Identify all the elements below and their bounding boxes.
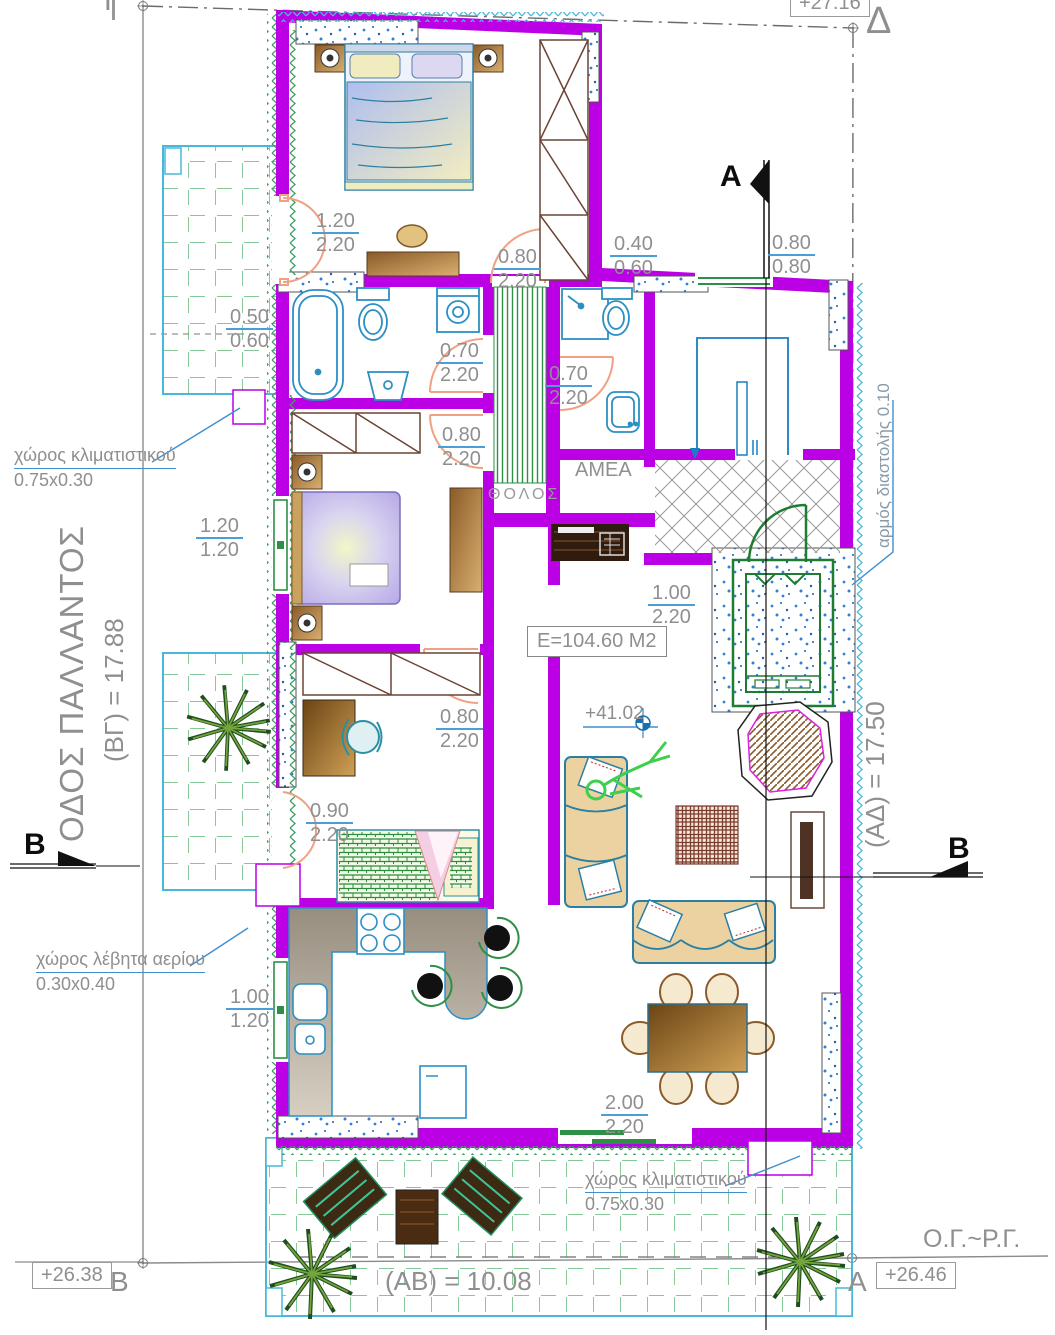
boiler-note: χώρος λέβητα αερίου 0.30x0.40 xyxy=(36,948,205,997)
terrace-table xyxy=(396,1190,438,1244)
rug xyxy=(676,806,738,864)
toilet xyxy=(357,288,389,340)
armchair xyxy=(738,702,832,800)
shower xyxy=(562,289,608,339)
dimension-label: 2.002.20 xyxy=(601,1092,648,1138)
level-box-b: +26.38 xyxy=(32,1262,112,1289)
dimension-label: 1.201.20 xyxy=(196,515,243,561)
side-ad-label: (ΑΔ) = 17.50 xyxy=(860,701,891,848)
corner-letter-b: B xyxy=(110,1266,129,1298)
corner-letter-gamma: Γ xyxy=(104,0,121,18)
dimension-label: 1.001.20 xyxy=(226,986,273,1032)
dimension-label: 0.800.80 xyxy=(768,232,815,278)
bed xyxy=(292,492,400,604)
window-1-20 xyxy=(272,496,289,594)
dimension-label: 1.002.20 xyxy=(648,582,695,628)
wardrobe xyxy=(540,40,588,280)
dining-set xyxy=(622,974,774,1104)
tholos-label: ΘΟΛΟΣ xyxy=(488,486,560,504)
ac-niche-bottom xyxy=(748,1141,812,1175)
corner-letter-a: A xyxy=(848,1266,867,1298)
level-box-a: +26.46 xyxy=(876,1262,956,1289)
dimension-label: 0.802.20 xyxy=(438,424,485,470)
ac-niche-left xyxy=(233,390,265,424)
section-letter-a-top: A xyxy=(720,160,742,194)
living-room xyxy=(565,702,832,1104)
sink xyxy=(607,392,639,432)
entry-doormat xyxy=(551,524,629,561)
kitchen xyxy=(289,908,522,1118)
tall-cabinet xyxy=(450,488,482,592)
dimension-label: 0.902.20 xyxy=(306,800,353,846)
washing-machine xyxy=(437,288,479,332)
dimension-label: 0.802.20 xyxy=(494,246,541,292)
furniture-office xyxy=(303,653,480,902)
floor-plan-drawing xyxy=(0,0,1055,1335)
street-name-label: ΟΔΟΣ ΠΑΛΛΑΝΤΟΣ xyxy=(53,525,91,842)
side-ab-label: (ΑΒ) = 10.08 xyxy=(385,1266,532,1297)
toilet xyxy=(602,288,632,335)
window-1-00 xyxy=(272,958,289,1062)
side-bg-label: (ΒΓ) = 17.88 xyxy=(99,618,130,762)
stair-void xyxy=(690,338,788,459)
corner-letter-delta: Δ xyxy=(866,0,891,43)
double-bed xyxy=(345,44,473,190)
wardrobe xyxy=(303,653,480,695)
dimension-label: 0.500.60 xyxy=(226,306,273,352)
dining-table xyxy=(648,1004,747,1072)
single-bed xyxy=(337,830,479,902)
tholos-shaft xyxy=(494,287,546,483)
section-letter-b-right: B xyxy=(948,832,970,866)
tv-unit xyxy=(791,812,824,908)
ac-note-bottom: χώρος κλιματιστικού 0.75x0.30 xyxy=(585,1168,747,1217)
dimension-label: 0.802.20 xyxy=(436,706,483,752)
dimension-label: 1.202.20 xyxy=(312,210,359,256)
dimension-label: 0.702.20 xyxy=(545,363,592,409)
kitchen-sink xyxy=(293,984,327,1054)
amea-label: ΑΜΕΑ xyxy=(575,459,632,482)
ac-note-left: χώρος κλιματιστικού 0.75x0.30 xyxy=(14,444,176,493)
section-letter-b-left: B xyxy=(24,828,46,862)
area-label: Ε=104.60 Μ2 xyxy=(527,626,667,657)
dresser xyxy=(367,225,459,276)
level-box-top: +27.16 xyxy=(790,0,870,17)
floor-level-label: +41.02 xyxy=(585,703,644,725)
dimension-label: 0.702.20 xyxy=(436,340,483,386)
fridge xyxy=(420,1066,466,1118)
hob xyxy=(357,908,404,954)
sofa-vertical xyxy=(565,757,627,907)
entry-hatch xyxy=(655,460,840,553)
dimension-label: 0.400.60 xyxy=(610,233,657,279)
sofa-horizontal xyxy=(633,900,775,963)
expansion-joint-label: αρμός διαστολής 0.10 xyxy=(874,383,894,548)
boiler-niche xyxy=(256,864,300,906)
sink xyxy=(368,372,408,400)
building-lines-label: Ο.Γ.~Ρ.Γ. xyxy=(923,1225,1020,1254)
wardrobe xyxy=(292,413,420,453)
window-top-right xyxy=(695,273,773,287)
floor-plan-page: Γ +27.16 Δ A B B 1.202.20 0.802.20 0.400… xyxy=(0,0,1055,1335)
